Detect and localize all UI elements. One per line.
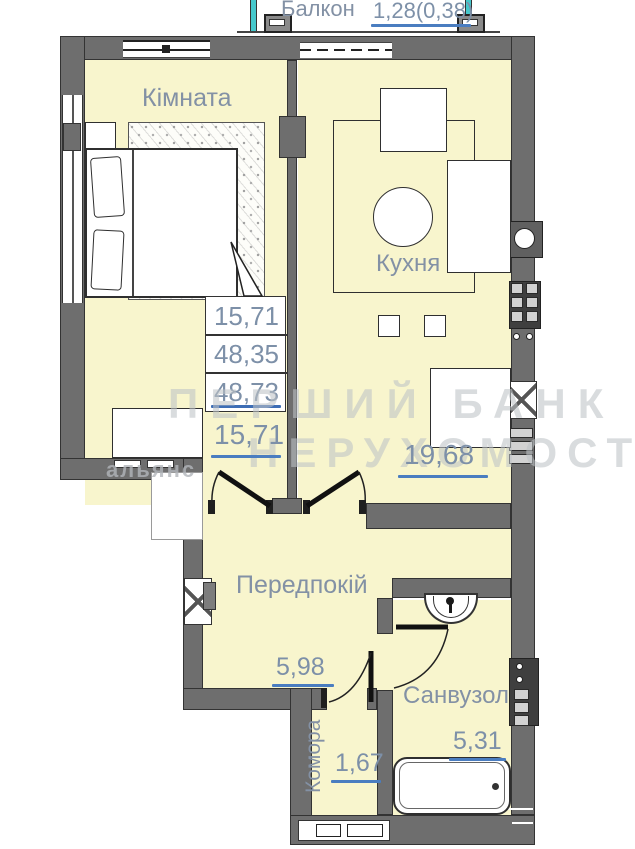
shaft-dot <box>516 676 523 683</box>
shaft-cell <box>511 311 523 322</box>
wall-mid-cap <box>272 498 302 514</box>
shaft-dot <box>526 333 533 340</box>
shaft-cell <box>526 311 538 322</box>
wall-pier-block <box>203 582 216 610</box>
underline-sanvuzol <box>449 758 506 761</box>
corner-step-line <box>512 822 533 824</box>
pillow <box>90 229 124 291</box>
fridge <box>447 160 511 273</box>
bed-headboard-line <box>132 150 134 296</box>
outside-ledge <box>151 472 203 540</box>
shaft-cell <box>526 297 538 308</box>
door-jamb <box>359 500 366 514</box>
label-komora: Комора <box>303 698 324 793</box>
shaft-cell <box>526 283 538 294</box>
room-hall-bathdoor-strip <box>377 578 393 690</box>
bathtub-drain <box>492 783 499 790</box>
room-hall-arm <box>366 529 511 578</box>
label-kukhnya: Кухня <box>376 252 440 276</box>
stamp-divider <box>206 372 287 374</box>
window-balcony-door <box>300 42 392 58</box>
underline-peredpokii <box>272 684 334 687</box>
wall-mid-column <box>279 116 306 158</box>
dining-table <box>373 187 433 247</box>
window-top-room <box>123 40 210 58</box>
pillow <box>90 156 125 218</box>
door-jamb <box>303 500 310 514</box>
balcony-area-value: 1,28(0,38) <box>373 0 473 22</box>
underline-komora <box>331 780 381 783</box>
stove <box>380 88 447 152</box>
stamp-divider <box>206 334 287 336</box>
shaft-cell <box>514 715 529 726</box>
sink-top-line <box>424 593 478 595</box>
bathtub-inner <box>399 762 505 809</box>
wall-komora-door-post <box>367 688 377 710</box>
kitchen-stool <box>378 315 400 337</box>
underline-kukhnya <box>398 475 488 478</box>
balcony-underline <box>371 24 471 27</box>
shaft-cell <box>514 702 529 713</box>
area-kimnata: 15,71 <box>214 421 284 449</box>
balcony-label: Балкон <box>281 0 355 20</box>
window-mullion <box>162 45 170 53</box>
wall-kitchen-bottom <box>366 503 511 529</box>
entrance-door-leaf <box>347 824 383 837</box>
label-kimnata: Кімната <box>142 86 232 111</box>
door-jamb <box>208 500 215 514</box>
room-komora-door-strip <box>327 688 367 710</box>
wall-bath-left-upper <box>377 598 393 634</box>
watermark-line3: альянс <box>106 459 196 481</box>
shaft-dot <box>513 333 520 340</box>
vent-fan-circle <box>514 228 535 249</box>
label-sanvuzol: Санвузол <box>403 684 509 708</box>
area-peredpokii: 5,98 <box>276 655 325 680</box>
window-glass-line <box>300 49 392 51</box>
area-kukhnya: 19,68 <box>404 441 474 469</box>
balcony-rail-left <box>250 0 257 32</box>
stamp-row-area: 48,35 <box>206 341 287 367</box>
shaft-cell <box>511 297 523 308</box>
shaft-dot <box>516 663 523 670</box>
stamp-row-living: 15,71 <box>206 303 287 329</box>
underline-kimnata <box>211 455 281 458</box>
window-left <box>62 95 83 303</box>
area-sanvuzol: 5,31 <box>453 729 502 754</box>
label-peredpokii: Передпокій <box>236 573 368 598</box>
window-pier <box>63 123 81 151</box>
area-komora: 1,67 <box>335 751 384 776</box>
corner-step-line <box>505 808 533 810</box>
floor-plan: 15,71 48,35 48,73 ПЕРШИЙ БАНК НЕРУХОМОСТ… <box>0 0 635 849</box>
entrance-door-leaf <box>316 824 341 837</box>
door-jamb <box>266 500 273 514</box>
shaft-cell <box>514 689 529 700</box>
shaft-cell <box>511 283 523 294</box>
kitchen-stool <box>424 315 446 337</box>
sink-tap-stem <box>449 604 452 613</box>
